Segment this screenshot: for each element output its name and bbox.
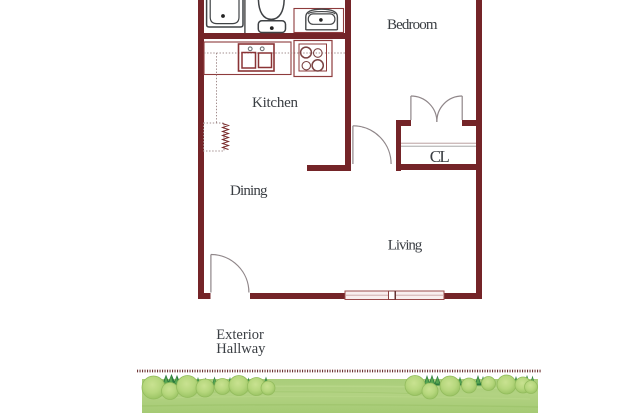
- svg-text:Living: Living: [388, 237, 423, 253]
- svg-text:Hallway: Hallway: [216, 341, 266, 357]
- svg-text:CL: CL: [430, 147, 450, 166]
- svg-text:Bedroom: Bedroom: [387, 17, 438, 33]
- svg-text:Kitchen: Kitchen: [252, 95, 299, 111]
- svg-text:Dining: Dining: [230, 183, 268, 199]
